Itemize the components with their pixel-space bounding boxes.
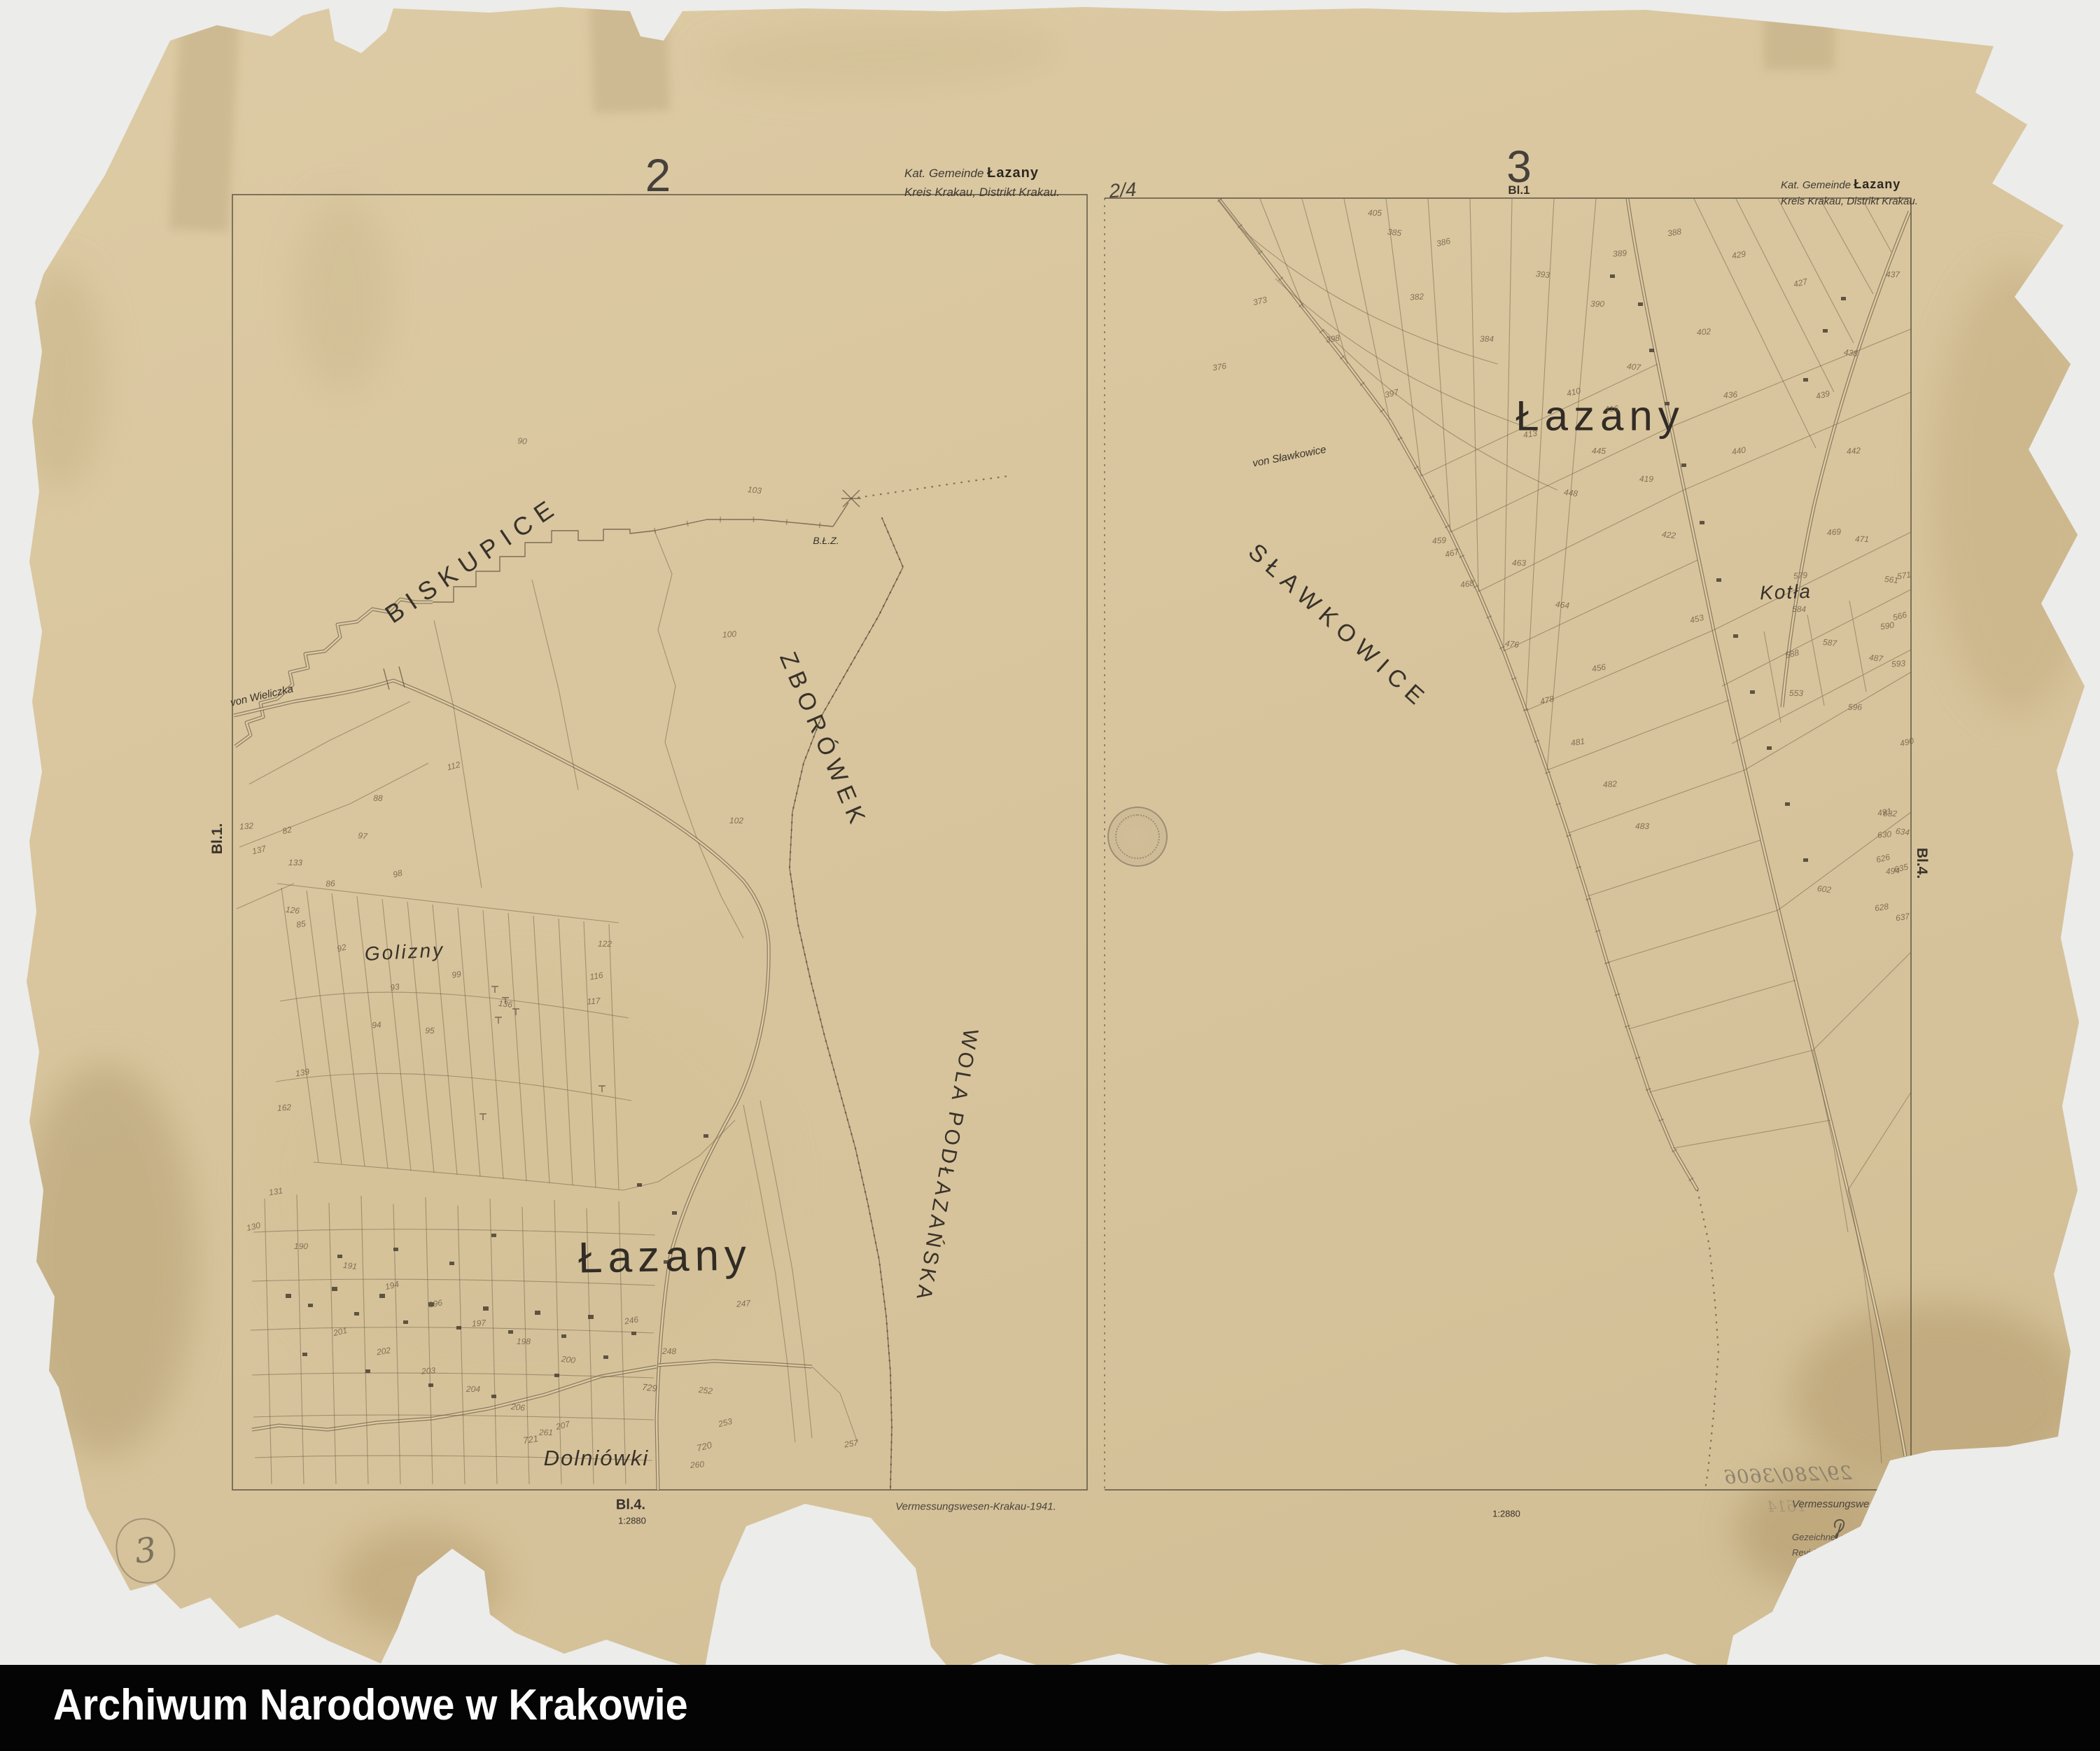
parcel-number: 416 xyxy=(1604,403,1619,414)
parcel-number: 94 xyxy=(372,1020,381,1031)
parcel-number: 442 xyxy=(1847,445,1861,456)
parcel-number: 162 xyxy=(277,1102,292,1112)
parcel-number: 593 xyxy=(1891,658,1906,669)
toponym-kotla: Kotła xyxy=(1760,580,1812,605)
map-paper-sheet: 2 Kat. Gemeinde Łazany Kreis Krakau, Dis… xyxy=(0,0,2100,1751)
parcel-number: 117 xyxy=(587,996,601,1006)
parcel-number: 389 xyxy=(1613,248,1627,258)
parcel-number: 102 xyxy=(729,816,743,825)
parcel-number: 729 xyxy=(641,1381,657,1393)
parcel-number: 476 xyxy=(1504,639,1519,650)
parcel-number: 204 xyxy=(466,1384,480,1394)
parcel-number: 630 xyxy=(1877,829,1892,839)
parcel-number: 483 xyxy=(1635,821,1649,831)
parcel-number: 436 xyxy=(1723,389,1738,400)
parcel-number: 198 xyxy=(517,1337,531,1346)
right-sheet-header: Kat. Gemeinde Łazany Kreis Krakau, Distr… xyxy=(1781,175,1935,210)
archival-map-scan: 2 Kat. Gemeinde Łazany Kreis Krakau, Dis… xyxy=(0,0,2100,1751)
parcel-number: 99 xyxy=(451,969,461,980)
parcel-number: 402 xyxy=(1697,326,1711,337)
parcel-number: 584 xyxy=(1792,604,1806,614)
toponym-lazany-right: Łazany xyxy=(1515,392,1684,440)
gemeinde-name: Łazany xyxy=(987,165,1039,181)
parcel-number: 133 xyxy=(288,858,302,867)
toponym-lazany-left: Łazany xyxy=(577,1230,752,1283)
left-sheet-frame xyxy=(232,195,1087,1490)
parcel-number: 385 xyxy=(1387,227,1401,238)
parcel-number: 405 xyxy=(1368,208,1382,218)
parcel-number: 459 xyxy=(1432,535,1447,545)
parcel-number: 126 xyxy=(285,905,300,916)
left-sheet-credit: Vermessungswesen-Krakau-1941. xyxy=(895,1501,1056,1513)
parcel-number: 437 xyxy=(1886,270,1900,279)
parcel-number: 100 xyxy=(722,629,737,639)
left-sheet-bl4-label: Bl.4. xyxy=(616,1498,645,1514)
parcel-number: 634 xyxy=(1895,826,1910,837)
toponym-golizny: Golizny xyxy=(364,939,445,965)
parcel-number: 248 xyxy=(662,1346,676,1356)
gemeinde-name: Łazany xyxy=(1854,177,1900,191)
right-sheet-edge-label-bl4: Bl.4. xyxy=(1913,848,1930,879)
pencil-number-mirrored-faint: 1614 xyxy=(1767,1498,1806,1516)
parcel-number: 97 xyxy=(358,830,368,841)
parcel-number: 85 xyxy=(295,919,306,930)
header-line1: Kat. Gemeinde Łazany xyxy=(1781,175,1935,194)
parcel-number: 469 xyxy=(1827,526,1842,537)
parcel-number: 247 xyxy=(736,1298,751,1309)
parcel-number: 464 xyxy=(1555,599,1569,611)
left-sheet-edge-label-bl1: Bl.1. xyxy=(209,823,226,854)
parcel-number: 422 xyxy=(1661,529,1676,540)
parcel-number: 587 xyxy=(1822,637,1837,648)
map-linework xyxy=(0,0,2100,1751)
roadside-buildings xyxy=(1610,274,1846,862)
parcel-number: 393 xyxy=(1535,269,1550,280)
parcel-number: 95 xyxy=(425,1026,435,1035)
parcel-number: 596 xyxy=(1848,702,1862,712)
parcel-number: 407 xyxy=(1626,361,1641,372)
round-stamp xyxy=(1107,807,1168,867)
parcel-number: 553 xyxy=(1789,688,1803,698)
toponym-dolniowki: Dolniówki xyxy=(544,1446,650,1471)
parcel-number: 471 xyxy=(1855,534,1869,544)
parcel-number: 132 xyxy=(239,821,254,831)
parcel-number: 463 xyxy=(1512,558,1526,568)
right-sheet-scale: 1:2880 xyxy=(1492,1509,1520,1519)
parcel-number: 206 xyxy=(510,1402,525,1413)
archive-footer-bar: Archiwum Narodowe w Krakowie xyxy=(0,1665,2100,1751)
parcel-number: 382 xyxy=(1410,291,1424,302)
parcel-number: 602 xyxy=(1816,884,1831,895)
parcel-number: 632 xyxy=(1883,809,1897,818)
parcel-number: 191 xyxy=(342,1260,357,1271)
parcel-number: 136 xyxy=(498,998,512,1010)
header-line2: Kreis Krakau, Distrikt Krakau. xyxy=(904,183,1100,202)
parcel-number: 448 xyxy=(1563,487,1578,498)
gezeichnet-label: Gezeichnet : xyxy=(1792,1532,1843,1542)
pencil-inventory-number-mirrored: 29/280/3606 xyxy=(1723,1463,1853,1488)
header-line1: Kat. Gemeinde Łazany xyxy=(904,162,1100,183)
parcel-number: 116 xyxy=(589,970,603,982)
signature-scribbles xyxy=(1833,1520,1861,1560)
parcel-number: 200 xyxy=(561,1354,575,1365)
parcel-number: 88 xyxy=(373,793,383,803)
parcel-number: 390 xyxy=(1590,299,1604,309)
right-sheet-frame xyxy=(1105,198,1911,1490)
parcel-number: 122 xyxy=(598,939,612,949)
parcel-number: 438 xyxy=(1843,347,1858,358)
parcel-number: 103 xyxy=(747,484,762,496)
left-sheet-linework xyxy=(234,476,1008,1490)
parcel-number: 445 xyxy=(1592,446,1606,456)
boundary-point-label-blz: B.Ł.Z. xyxy=(813,535,839,546)
left-sheet-scale: 1:2880 xyxy=(618,1516,646,1526)
parcel-number: 93 xyxy=(389,982,400,993)
parcel-number: 261 xyxy=(539,1428,553,1437)
parcel-number: 252 xyxy=(698,1385,713,1396)
right-sheet-sub-number: Bl.1 xyxy=(1508,183,1529,197)
parcel-number: 487 xyxy=(1868,653,1883,664)
parcel-number: 579 xyxy=(1793,570,1808,580)
parcel-number: 197 xyxy=(472,1318,486,1328)
parcel-number: 90 xyxy=(517,435,528,446)
archive-name: Archiwum Narodowe w Krakowie xyxy=(53,1680,688,1730)
parcel-number: 419 xyxy=(1639,474,1653,484)
parcel-number: 86 xyxy=(325,879,335,889)
parcel-number: 384 xyxy=(1480,334,1494,344)
header-line2: Kreis Krakau, Distrikt Krakau. xyxy=(1781,194,1935,210)
parcel-number: 482 xyxy=(1603,779,1618,789)
revidiert-label: Revidiert : xyxy=(1792,1547,1833,1558)
parcel-number: 190 xyxy=(294,1241,308,1251)
left-sheet-number: 2 xyxy=(645,148,671,202)
left-sheet-header: Kat. Gemeinde Łazany Kreis Krakau, Distr… xyxy=(904,162,1100,202)
right-sheet-corner-mark: 2/4 xyxy=(1108,179,1137,203)
parcel-number: 260 xyxy=(690,1459,705,1470)
parcel-number: 203 xyxy=(421,1365,436,1376)
